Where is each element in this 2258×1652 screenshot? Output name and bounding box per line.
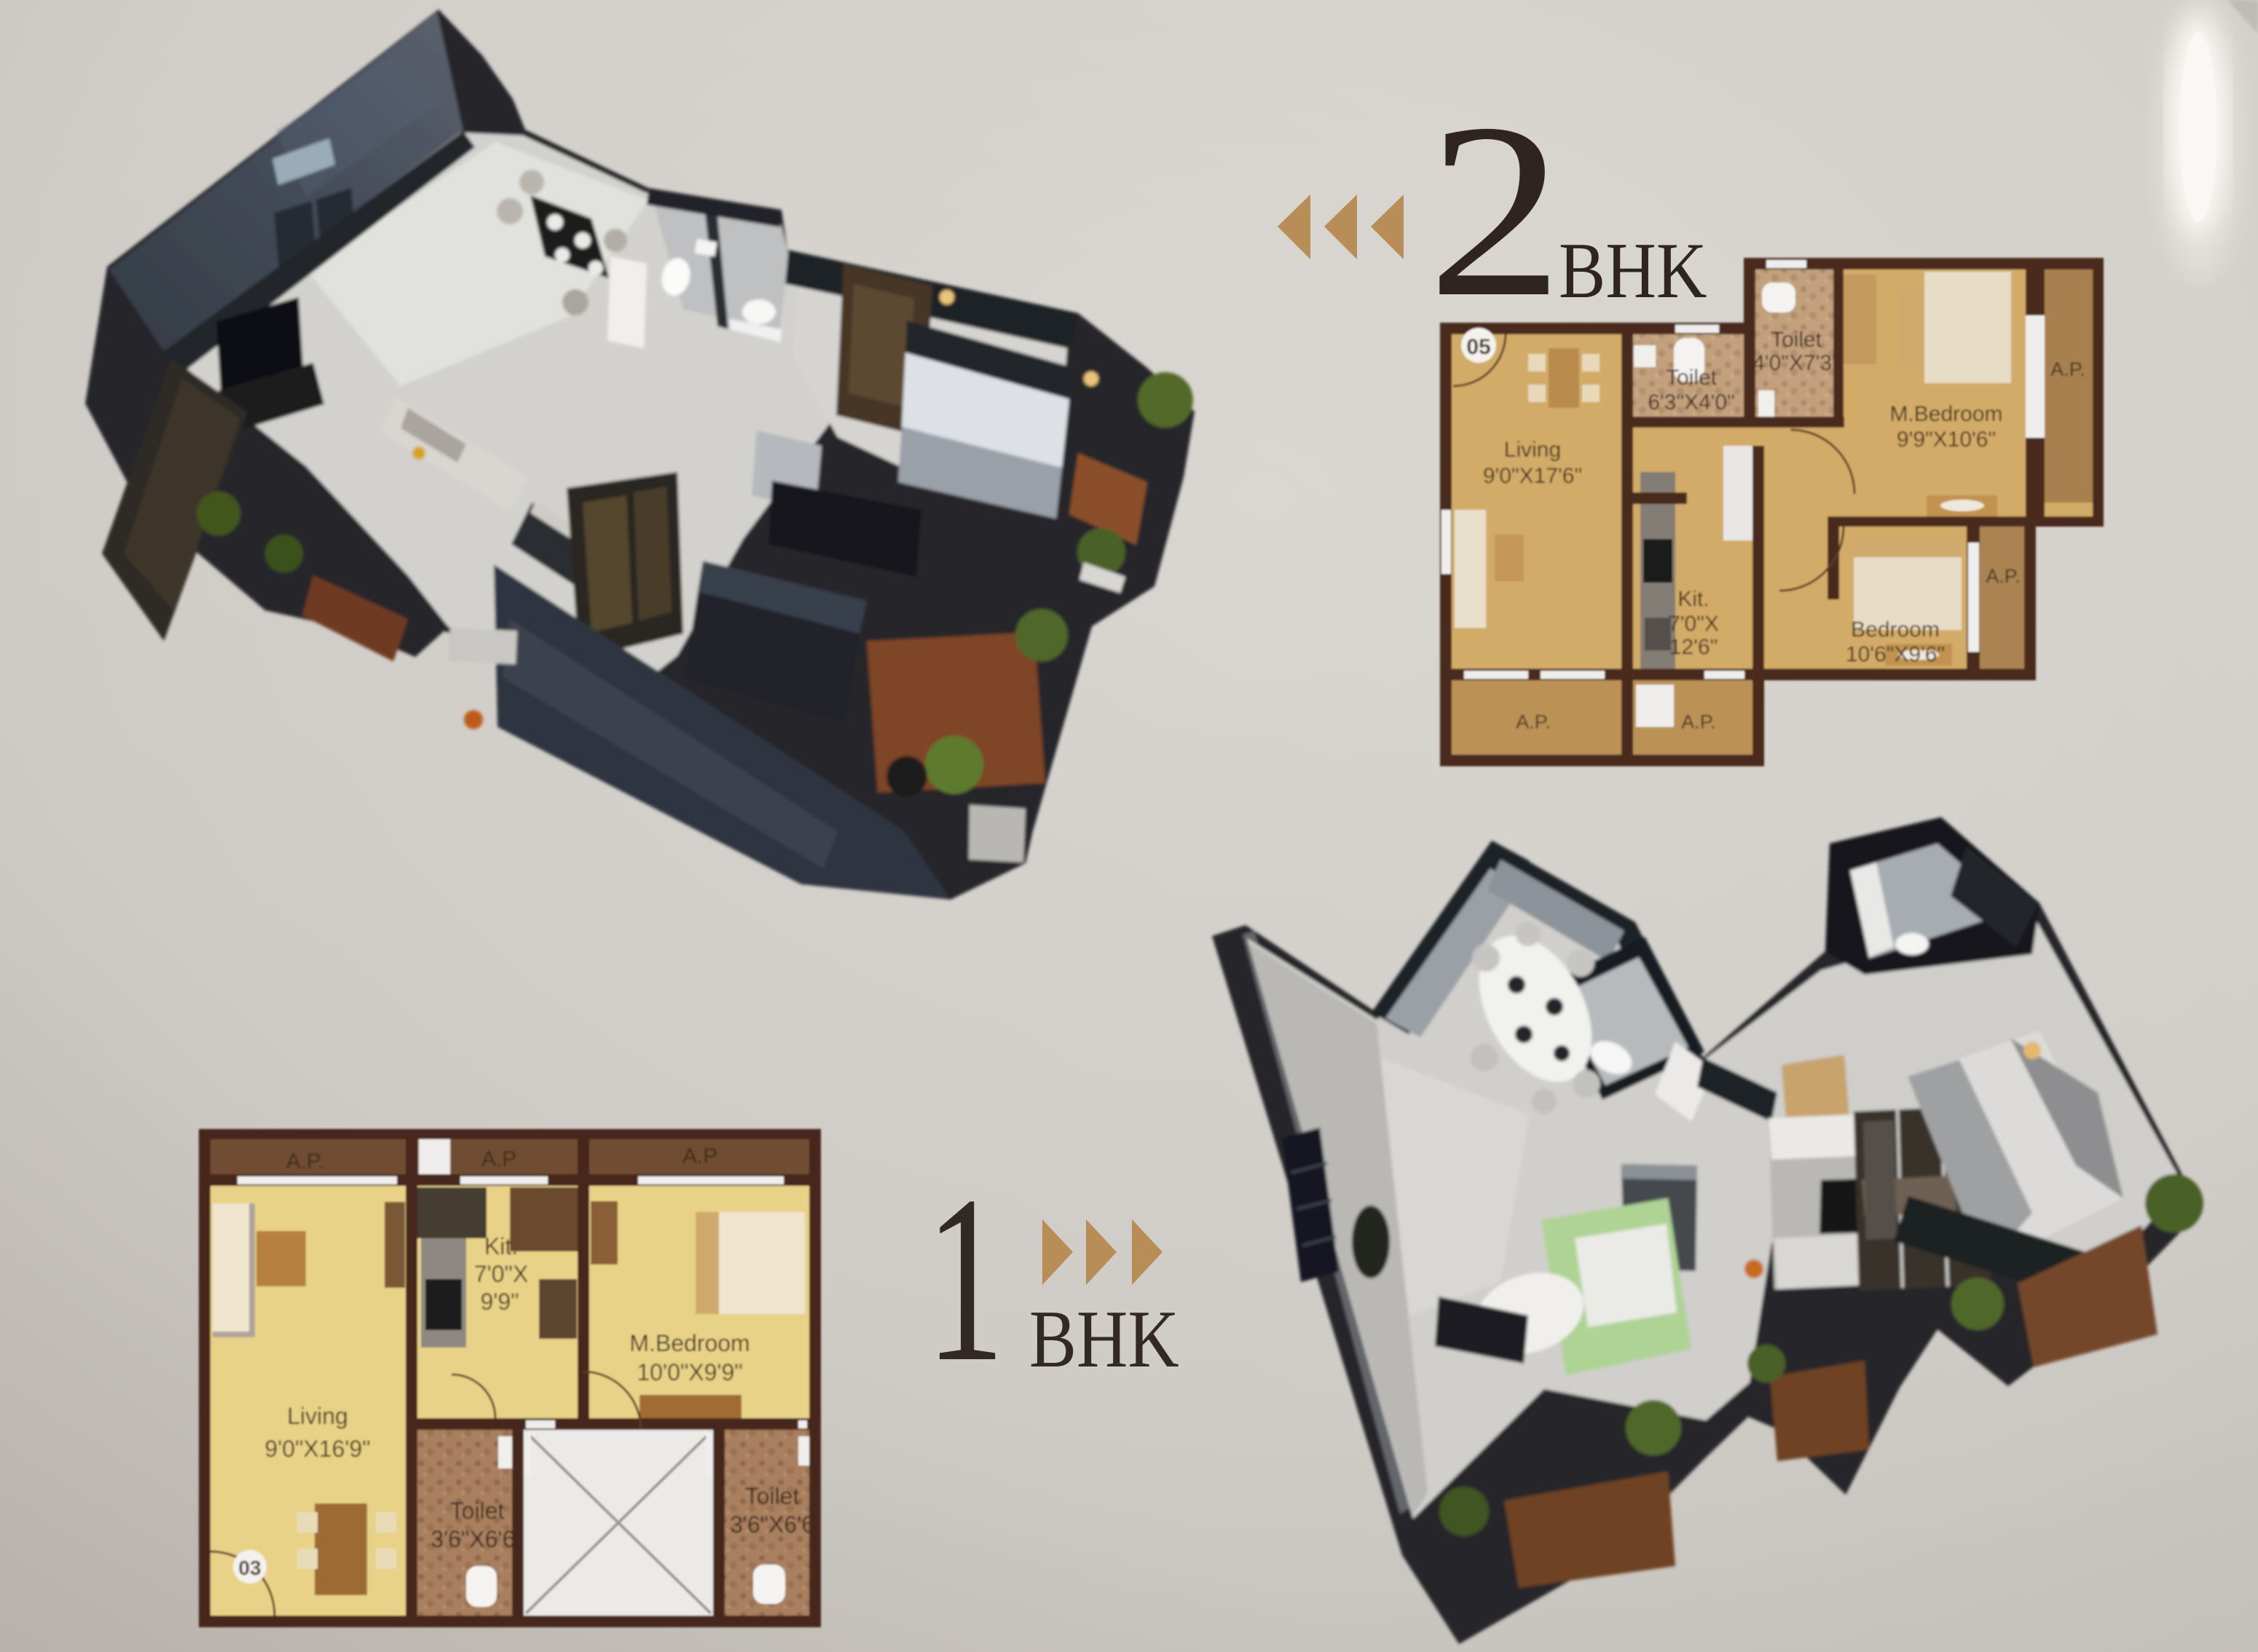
- svg-text:Kit.: Kit.: [1677, 587, 1709, 611]
- svg-text:Living: Living: [1504, 438, 1561, 462]
- svg-text:A.P.: A.P.: [2050, 358, 2085, 380]
- svg-text:9'0"X16'9": 9'0"X16'9": [264, 1436, 370, 1462]
- svg-text:M.Bedroom: M.Bedroom: [629, 1330, 750, 1356]
- svg-text:BHK: BHK: [1029, 1294, 1179, 1385]
- svg-text:Toilet: Toilet: [1666, 366, 1718, 390]
- svg-text:BHK: BHK: [1559, 227, 1707, 315]
- svg-text:A.P.: A.P.: [286, 1149, 325, 1173]
- svg-text:2: 2: [1428, 72, 1563, 349]
- svg-text:9'0"X17'6": 9'0"X17'6": [1483, 464, 1582, 488]
- svg-text:A.P.: A.P.: [1516, 711, 1551, 733]
- svg-text:Toilet: Toilet: [450, 1498, 505, 1524]
- svg-text:Kit.: Kit.: [484, 1233, 518, 1259]
- svg-text:10'6"X9'6": 10'6"X9'6": [1846, 642, 1945, 666]
- svg-text:A.P.: A.P.: [1986, 565, 2021, 587]
- svg-text:A.P: A.P: [682, 1144, 717, 1168]
- svg-text:M.Bedroom: M.Bedroom: [1889, 402, 2002, 426]
- svg-text:9'9"X10'6": 9'9"X10'6": [1897, 428, 1996, 452]
- svg-text:9'9": 9'9": [480, 1289, 519, 1315]
- svg-text:3'6"X6'6: 3'6"X6'6: [730, 1511, 814, 1538]
- svg-text:3'6"X6'6": 3'6"X6'6": [430, 1526, 523, 1552]
- svg-text:10'0"X9'9": 10'0"X9'9": [637, 1359, 742, 1385]
- svg-text:6'3"X4'0": 6'3"X4'0": [1648, 390, 1735, 414]
- svg-text:7'0"X: 7'0"X: [474, 1261, 528, 1287]
- svg-text:7'0"X: 7'0"X: [1668, 612, 1719, 636]
- svg-text:A.P.: A.P.: [1681, 711, 1716, 733]
- svg-text:Bedroom: Bedroom: [1851, 618, 1940, 642]
- svg-text:12'6": 12'6": [1669, 635, 1718, 659]
- svg-text:A.P: A.P: [481, 1147, 516, 1171]
- svg-text:Toilet: Toilet: [745, 1483, 800, 1509]
- svg-text:4'0"X7'3": 4'0"X7'3": [1752, 351, 1840, 375]
- svg-text:05: 05: [1466, 335, 1490, 359]
- svg-text:1: 1: [926, 1146, 1004, 1412]
- svg-text:Living: Living: [287, 1403, 348, 1429]
- svg-text:Toilet: Toilet: [1771, 328, 1822, 352]
- svg-text:03: 03: [238, 1557, 261, 1579]
